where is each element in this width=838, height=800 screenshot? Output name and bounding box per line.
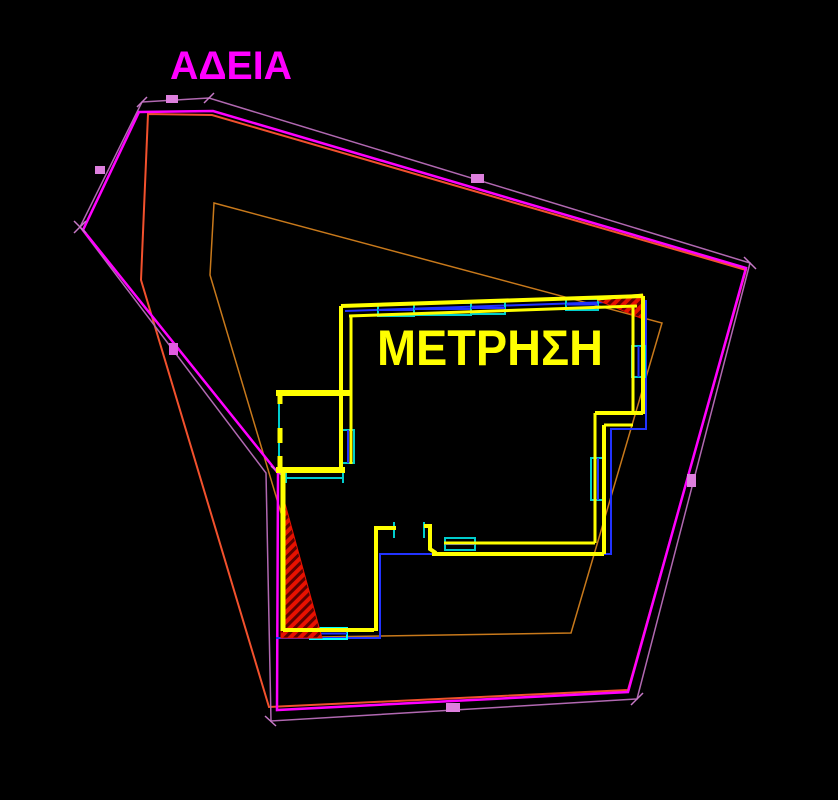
dimension-label-box [471,174,484,183]
canvas-background [0,0,838,800]
dimension-label-box [169,343,178,355]
permit-text-label[interactable]: ΑΔΕΙΑ [170,44,292,88]
dimension-label-box [166,95,178,103]
dimension-label-box [687,474,696,487]
dimension-label-box [446,703,460,712]
measurement-text-label[interactable]: ΜΕΤΡΗΣΗ [377,320,603,376]
cad-canvas[interactable]: ΑΔΕΙΑ ΜΕΤΡΗΣΗ [0,0,838,800]
cad-viewport: ΑΔΕΙΑ ΜΕΤΡΗΣΗ [0,0,838,800]
dimension-label-box [95,166,105,174]
